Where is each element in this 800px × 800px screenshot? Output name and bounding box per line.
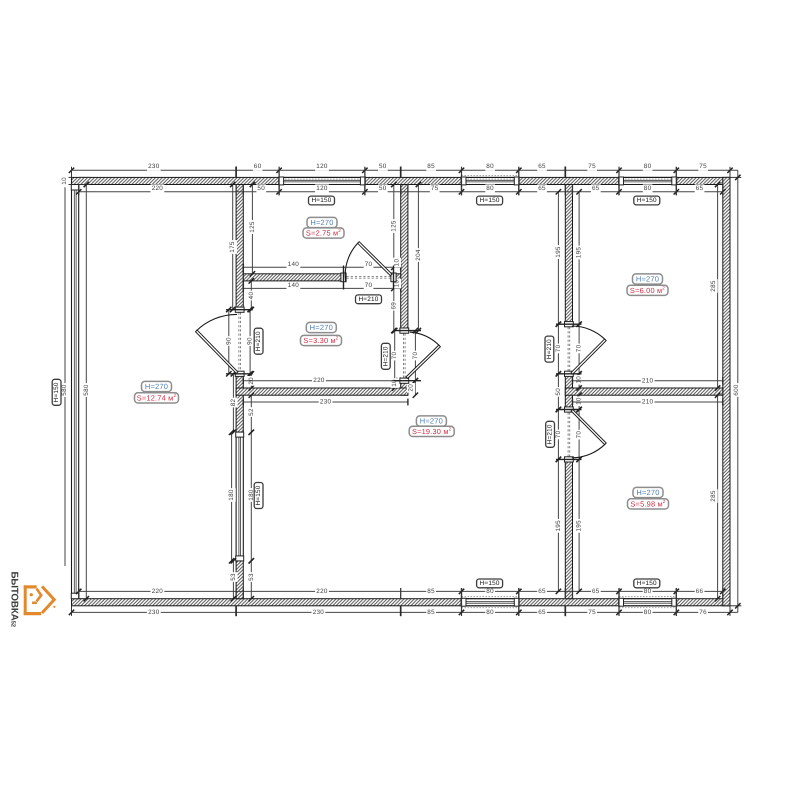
svg-text:125: 125 xyxy=(249,221,256,233)
svg-text:125: 125 xyxy=(390,220,397,232)
svg-text:50: 50 xyxy=(555,388,562,396)
svg-text:40: 40 xyxy=(248,292,255,300)
svg-text:H=210: H=210 xyxy=(255,331,262,351)
svg-text:53: 53 xyxy=(248,573,255,581)
svg-text:20: 20 xyxy=(408,384,415,392)
svg-text:H=150: H=150 xyxy=(255,485,262,505)
svg-text:80: 80 xyxy=(644,163,652,170)
svg-text:230: 230 xyxy=(148,163,160,170)
svg-text:210: 210 xyxy=(642,399,654,406)
svg-text:H=210: H=210 xyxy=(382,346,389,366)
svg-text:10: 10 xyxy=(576,376,583,384)
svg-text:S=5.98 м2: S=5.98 м2 xyxy=(630,499,665,508)
svg-text:82: 82 xyxy=(230,399,237,407)
svg-text:85: 85 xyxy=(427,163,435,170)
svg-text:80: 80 xyxy=(486,588,494,595)
svg-text:50: 50 xyxy=(257,185,265,192)
svg-text:70: 70 xyxy=(576,344,583,352)
svg-text:65: 65 xyxy=(538,163,546,170)
svg-text:80: 80 xyxy=(644,185,652,192)
svg-text:70: 70 xyxy=(365,282,373,289)
svg-text:H=210: H=210 xyxy=(547,424,554,444)
svg-text:600: 600 xyxy=(733,384,740,396)
svg-text:65: 65 xyxy=(592,588,600,595)
svg-text:285: 285 xyxy=(710,490,717,502)
svg-text:H=150: H=150 xyxy=(637,197,657,204)
svg-text:65: 65 xyxy=(592,185,600,192)
svg-text:S=6.00 м2: S=6.00 м2 xyxy=(630,286,665,295)
svg-text:H=270: H=270 xyxy=(636,275,659,284)
svg-text:180: 180 xyxy=(228,489,235,501)
svg-text:70: 70 xyxy=(576,431,583,439)
svg-text:53: 53 xyxy=(230,573,237,581)
svg-text:H=270: H=270 xyxy=(420,417,443,426)
svg-text:220: 220 xyxy=(152,185,164,192)
svg-text:75: 75 xyxy=(699,163,707,170)
svg-text:H=270: H=270 xyxy=(145,382,168,391)
svg-text:H=270: H=270 xyxy=(310,323,333,332)
svg-text:S=3.30 м2: S=3.30 м2 xyxy=(303,336,338,345)
svg-text:65: 65 xyxy=(538,185,546,192)
svg-text:60: 60 xyxy=(254,163,262,170)
svg-text:175: 175 xyxy=(229,241,236,253)
svg-text:70: 70 xyxy=(412,352,419,360)
svg-text:50: 50 xyxy=(379,163,387,170)
svg-text:H=150: H=150 xyxy=(311,197,331,204)
svg-text:204: 204 xyxy=(415,249,422,261)
svg-text:H=210: H=210 xyxy=(358,296,378,303)
svg-text:H=150: H=150 xyxy=(480,197,500,204)
svg-text:80: 80 xyxy=(644,588,652,595)
svg-text:75: 75 xyxy=(431,185,439,192)
svg-text:220: 220 xyxy=(313,377,325,384)
svg-text:85: 85 xyxy=(427,609,435,616)
svg-text:H=210: H=210 xyxy=(546,339,553,359)
svg-text:H=150: H=150 xyxy=(480,580,500,587)
svg-text:75: 75 xyxy=(588,609,596,616)
svg-text:H=270: H=270 xyxy=(636,488,659,497)
svg-text:220: 220 xyxy=(152,588,164,595)
svg-text:580: 580 xyxy=(83,384,90,396)
svg-text:65: 65 xyxy=(696,185,704,192)
svg-text:580: 580 xyxy=(61,384,68,396)
svg-text:80: 80 xyxy=(486,185,494,192)
svg-text:H=150: H=150 xyxy=(53,382,60,402)
svg-text:195: 195 xyxy=(555,246,562,258)
svg-text:85: 85 xyxy=(427,588,435,595)
svg-text:S=12.74 м2: S=12.74 м2 xyxy=(137,393,177,402)
svg-text:70: 70 xyxy=(391,352,398,360)
svg-text:50: 50 xyxy=(379,185,387,192)
svg-text:120: 120 xyxy=(316,163,328,170)
svg-text:140: 140 xyxy=(288,282,300,289)
svg-text:70: 70 xyxy=(555,344,562,352)
svg-text:230: 230 xyxy=(313,609,325,616)
svg-text:195: 195 xyxy=(576,520,583,532)
svg-text:210: 210 xyxy=(642,377,654,384)
svg-text:80: 80 xyxy=(644,609,652,616)
svg-text:220: 220 xyxy=(316,588,328,595)
svg-text:70: 70 xyxy=(365,261,373,268)
svg-text:70: 70 xyxy=(555,430,562,438)
svg-text:10: 10 xyxy=(393,259,400,267)
svg-text:69: 69 xyxy=(390,302,397,310)
svg-text:90: 90 xyxy=(225,337,232,345)
svg-text:140: 140 xyxy=(288,261,300,268)
svg-text:285: 285 xyxy=(710,280,717,292)
svg-text:120: 120 xyxy=(316,185,328,192)
svg-text:H=150: H=150 xyxy=(637,580,657,587)
svg-text:230: 230 xyxy=(148,609,160,616)
svg-text:52: 52 xyxy=(248,408,255,416)
svg-text:75: 75 xyxy=(588,163,596,170)
svg-text:90: 90 xyxy=(247,337,254,345)
svg-text:S=19.30 м2: S=19.30 м2 xyxy=(412,427,452,436)
svg-text:БЫТОВКА52: БЫТОВКА52 xyxy=(9,572,20,628)
svg-text:66: 66 xyxy=(696,588,704,595)
svg-text:10: 10 xyxy=(61,177,68,185)
svg-text:80: 80 xyxy=(486,163,494,170)
svg-text:230: 230 xyxy=(320,399,332,406)
svg-text:H=270: H=270 xyxy=(310,218,333,227)
svg-text:76: 76 xyxy=(699,609,707,616)
svg-text:195: 195 xyxy=(576,247,583,259)
svg-text:10: 10 xyxy=(576,397,583,405)
svg-text:65: 65 xyxy=(538,609,546,616)
svg-text:S=2.75 м2: S=2.75 м2 xyxy=(306,228,341,237)
svg-text:65: 65 xyxy=(538,588,546,595)
svg-text:80: 80 xyxy=(486,609,494,616)
svg-text:195: 195 xyxy=(555,520,562,532)
